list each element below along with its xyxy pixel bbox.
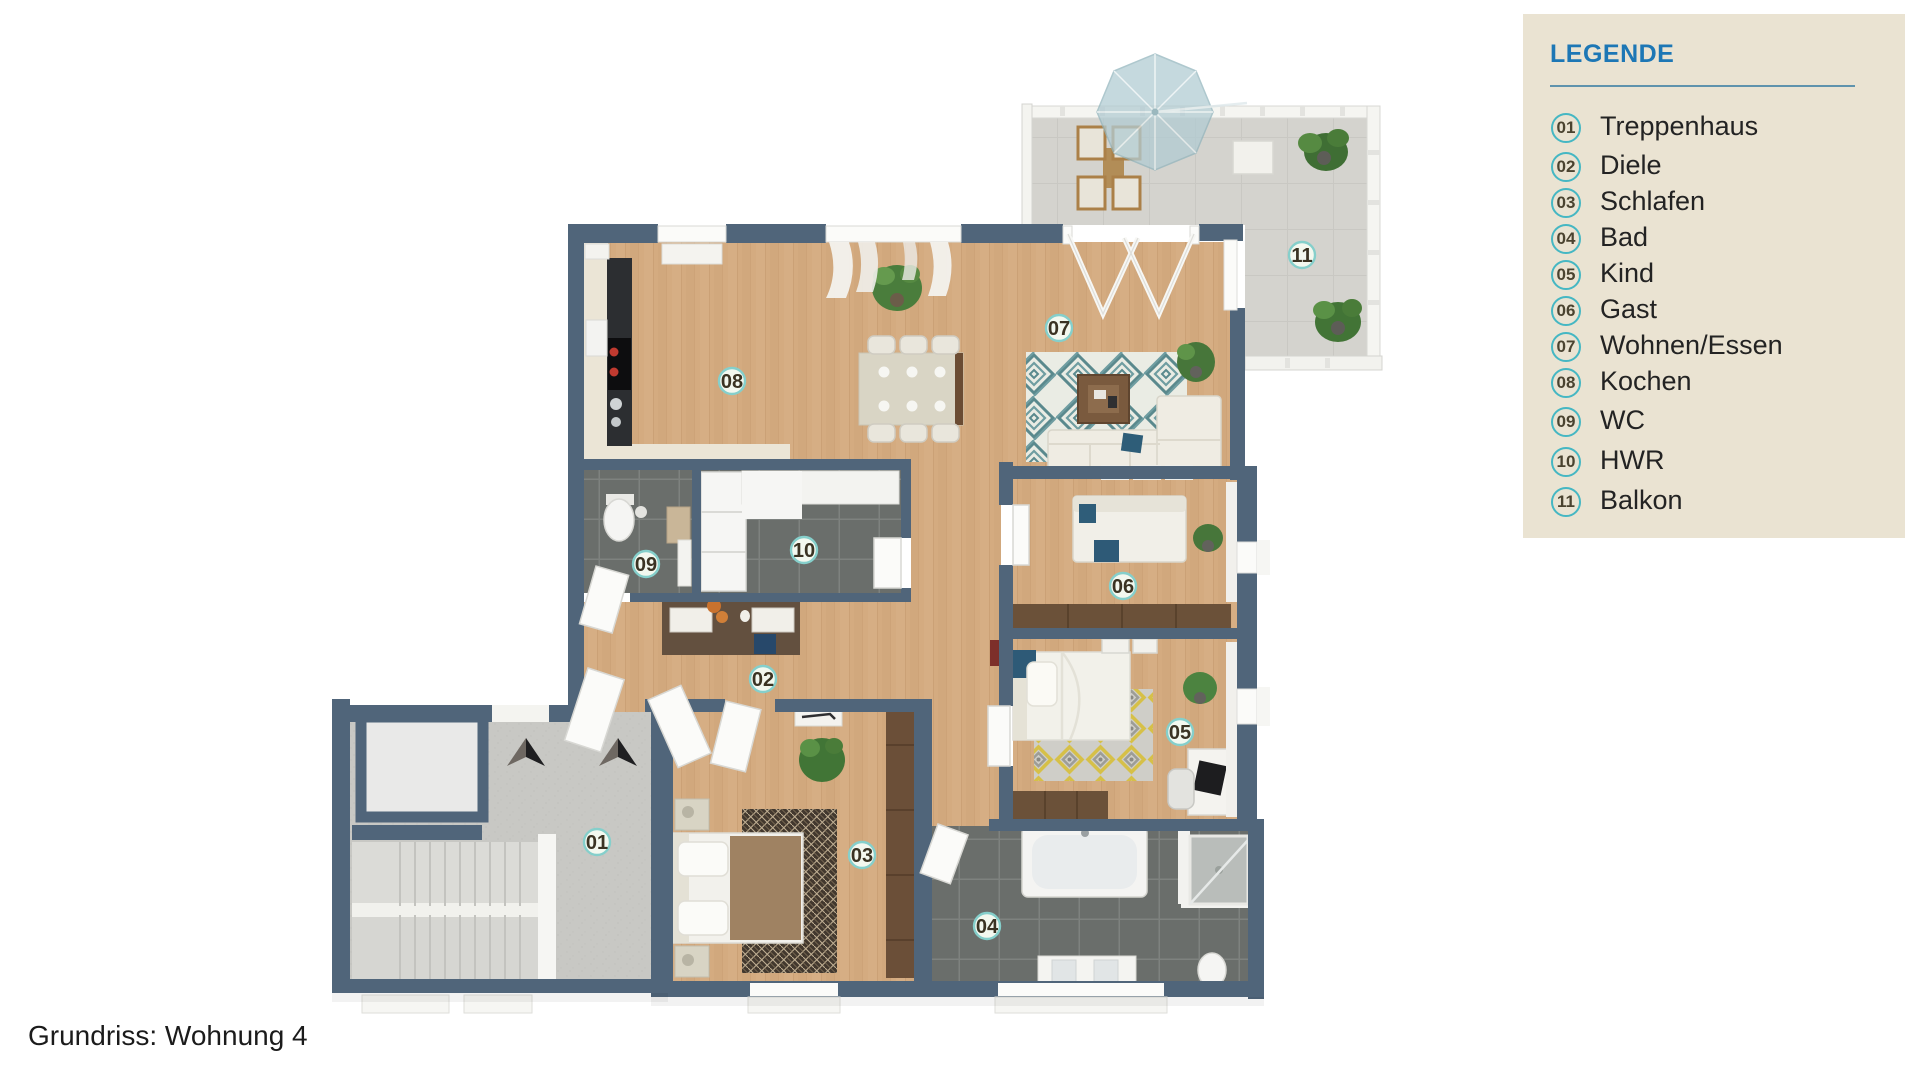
svg-text:04: 04 [976,916,999,938]
svg-text:01: 01 [586,832,608,854]
svg-text:08: 08 [721,371,743,393]
svg-text:11: 11 [1291,245,1312,267]
svg-text:07: 07 [1048,318,1070,340]
svg-text:10: 10 [793,540,815,562]
svg-text:05: 05 [1169,722,1191,744]
svg-text:06: 06 [1112,576,1134,598]
svg-text:09: 09 [635,554,657,576]
svg-text:02: 02 [752,669,774,691]
svg-text:03: 03 [851,845,873,867]
